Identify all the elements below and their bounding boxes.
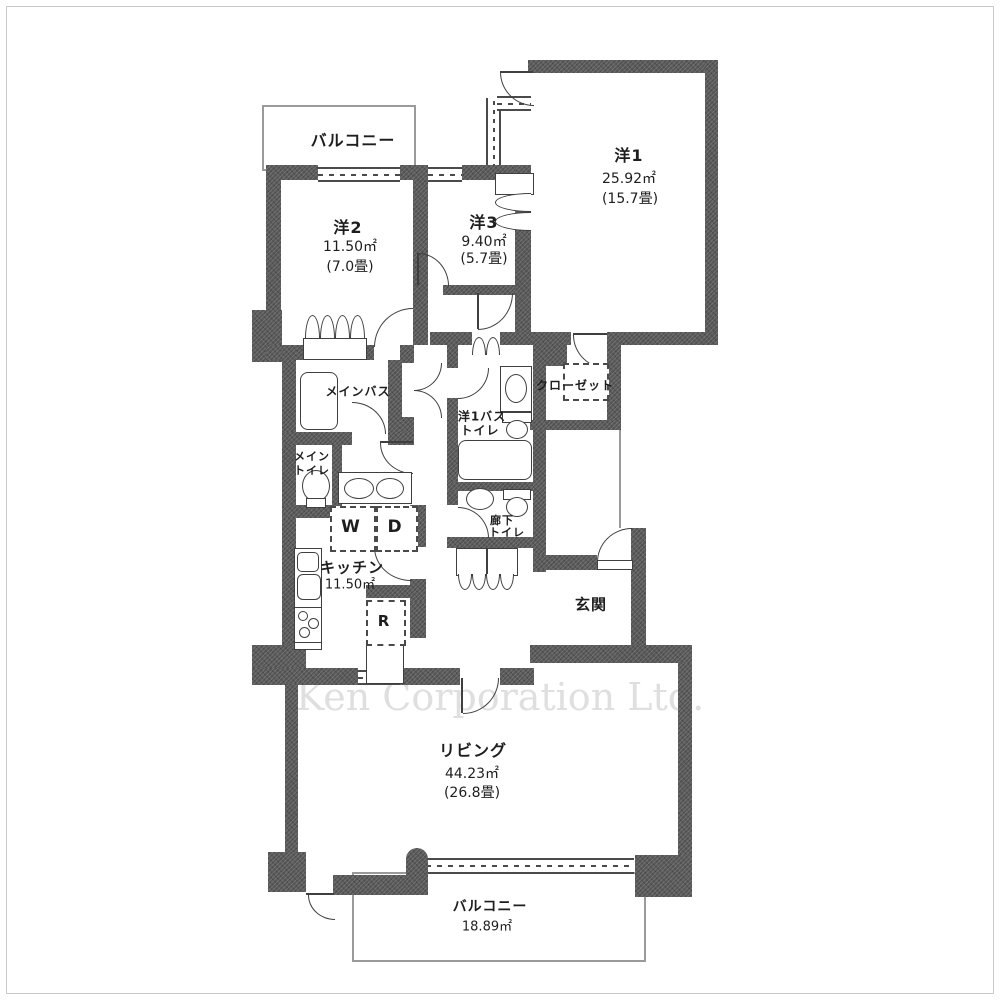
kitchen-sink-icon — [297, 574, 321, 600]
sink-icon — [344, 478, 374, 499]
living-label: リビング — [439, 737, 507, 761]
wall — [705, 60, 718, 345]
bathtub-icon — [300, 372, 338, 430]
washer-label: W — [341, 517, 361, 537]
wall — [268, 852, 306, 892]
window — [318, 167, 400, 182]
wall — [400, 345, 414, 363]
entry-alcove-line — [619, 428, 621, 528]
wall — [285, 683, 298, 855]
wall — [500, 668, 534, 685]
western1-area: 25.92㎡ — [602, 168, 656, 188]
floor-plan: Ken Corporation Ltd. — [0, 0, 1000, 1000]
wall — [252, 668, 358, 685]
wall — [530, 420, 621, 430]
wall — [447, 345, 458, 368]
door-leaf — [500, 71, 533, 73]
kitchen-area: 11.50㎡ — [325, 574, 375, 593]
stove-burner-icon — [299, 627, 310, 638]
western3-tatami: (5.7畳) — [460, 248, 507, 268]
wall — [635, 855, 692, 897]
western2-tatami: (7.0畳) — [326, 256, 373, 276]
western2-area: 11.50㎡ — [323, 236, 377, 256]
wall — [410, 579, 426, 602]
sink-icon — [376, 478, 404, 499]
door-leaf — [306, 893, 334, 895]
western2-label: 洋2 — [333, 214, 362, 238]
balcony-top-label: バルコニー — [311, 127, 396, 151]
wall-pillar — [406, 848, 428, 895]
folding-door-icon — [495, 193, 531, 231]
living-area: 44.23㎡ — [445, 763, 499, 783]
toilet-icon — [506, 420, 528, 439]
wall — [400, 668, 460, 685]
kitchen-sink-icon — [297, 552, 319, 572]
door-leaf — [573, 333, 607, 335]
living-tatami: (26.8畳) — [444, 782, 500, 802]
closet-strip — [303, 338, 367, 360]
wall — [333, 875, 415, 895]
western3-label: 洋3 — [469, 209, 498, 233]
western1-tatami: (15.7畳) — [602, 188, 658, 208]
wall — [631, 528, 646, 648]
wall — [533, 332, 546, 572]
sink-icon — [466, 488, 494, 510]
door-leaf — [417, 253, 419, 285]
sink-icon — [505, 374, 527, 403]
door-leaf — [477, 293, 479, 329]
entrance-label: 玄関 — [575, 594, 607, 615]
hall-toilet-label2: トイレ — [489, 524, 525, 540]
toilet-tank-icon — [306, 498, 326, 508]
refrigerator-label: R — [378, 612, 391, 630]
bathtub-icon — [458, 440, 532, 480]
wall — [607, 332, 718, 345]
wall — [533, 332, 567, 366]
wall — [528, 60, 718, 73]
closet-divider — [486, 548, 488, 574]
wall — [678, 663, 692, 858]
western1-label: 洋1 — [614, 142, 643, 166]
wall — [533, 555, 597, 570]
stove-burner-icon — [298, 611, 308, 621]
stove-burner-icon — [308, 618, 319, 629]
folding-door-icon — [472, 337, 500, 355]
folding-door-icon — [458, 574, 514, 590]
main-bath-label: メインバス — [325, 383, 390, 400]
wall — [410, 602, 426, 638]
western1-bath-label2: トイレ — [460, 422, 499, 439]
wall — [500, 332, 533, 345]
wall — [430, 332, 472, 345]
wall — [282, 432, 352, 445]
balcony-bottom-area: 18.89㎡ — [462, 916, 512, 935]
sliding-window — [426, 858, 634, 874]
wall — [530, 645, 692, 663]
balcony-bottom-label: バルコニー — [453, 896, 528, 916]
counter — [366, 644, 404, 684]
entrance-door-leaf — [597, 560, 633, 570]
main-toilet-label2: トイレ — [294, 462, 330, 478]
window — [428, 167, 462, 182]
closet-strip — [495, 173, 534, 195]
dryer-label: D — [387, 517, 402, 537]
door-leaf — [461, 678, 463, 713]
door-leaf — [380, 441, 413, 443]
folding-door-icon — [305, 315, 365, 338]
closet-label: クローゼット — [536, 377, 614, 394]
